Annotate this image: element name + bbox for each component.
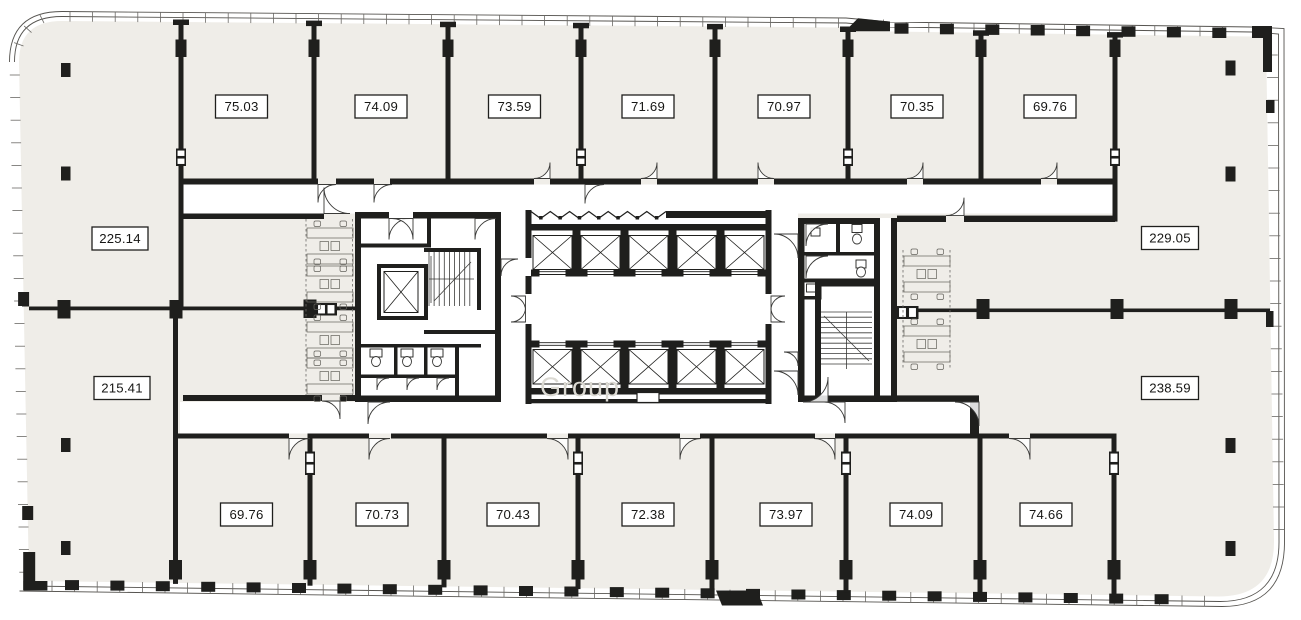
svg-text:225.14: 225.14 bbox=[99, 231, 141, 246]
svg-text:69.76: 69.76 bbox=[229, 507, 263, 522]
svg-text:238.59: 238.59 bbox=[1149, 381, 1191, 396]
svg-text:215.41: 215.41 bbox=[101, 381, 143, 396]
svg-text:Group: Group bbox=[540, 372, 620, 402]
svg-text:69.76: 69.76 bbox=[1033, 99, 1067, 114]
svg-text:70.43: 70.43 bbox=[496, 507, 530, 522]
svg-text:70.35: 70.35 bbox=[900, 99, 934, 114]
svg-text:70.97: 70.97 bbox=[767, 99, 801, 114]
svg-text:74.09: 74.09 bbox=[364, 99, 398, 114]
svg-text:73.97: 73.97 bbox=[769, 507, 803, 522]
svg-text:74.09: 74.09 bbox=[899, 507, 933, 522]
svg-text:71.69: 71.69 bbox=[631, 99, 665, 114]
svg-text:73.59: 73.59 bbox=[497, 99, 531, 114]
svg-text:75.03: 75.03 bbox=[224, 99, 258, 114]
svg-text:229.05: 229.05 bbox=[1149, 231, 1191, 246]
svg-text:72.38: 72.38 bbox=[631, 507, 665, 522]
svg-text:70.73: 70.73 bbox=[365, 507, 399, 522]
svg-text:74.66: 74.66 bbox=[1029, 507, 1063, 522]
